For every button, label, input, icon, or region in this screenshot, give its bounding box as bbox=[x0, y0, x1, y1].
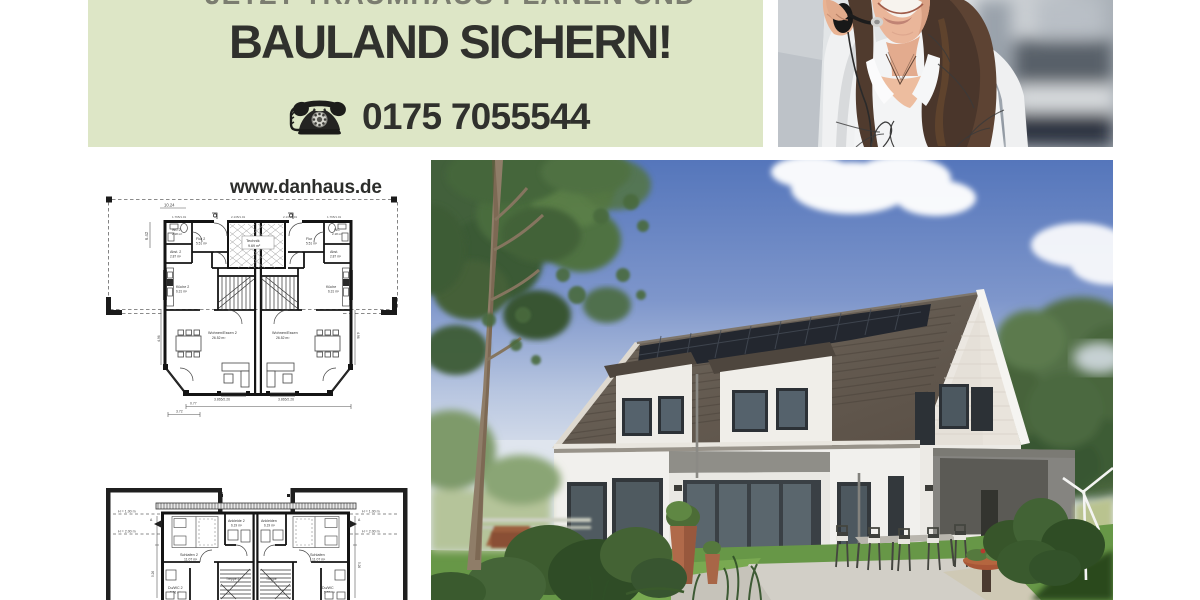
svg-text:6.31 m²: 6.31 m² bbox=[328, 290, 339, 294]
svg-text:5.51 m²: 5.51 m² bbox=[196, 242, 207, 246]
svg-text:0.77: 0.77 bbox=[190, 402, 197, 406]
svg-text:6.42: 6.42 bbox=[144, 231, 149, 240]
svg-text:H = 2.00 m: H = 2.00 m bbox=[118, 530, 136, 534]
svg-text:11.07 m²: 11.07 m² bbox=[312, 558, 326, 562]
svg-text:Wohnen/Essen: Wohnen/Essen bbox=[272, 331, 298, 335]
svg-text:H = 2.00 m: H = 2.00 m bbox=[362, 530, 380, 534]
svg-text:H = 1.00 m: H = 1.00 m bbox=[362, 510, 380, 514]
svg-text:Küche 2: Küche 2 bbox=[176, 285, 189, 289]
svg-text:Ankleide 2: Ankleide 2 bbox=[228, 519, 245, 523]
svg-text:Flur: Flur bbox=[306, 237, 313, 241]
svg-text:Flur 2: Flur 2 bbox=[196, 237, 205, 241]
svg-text:5.26: 5.26 bbox=[151, 571, 155, 577]
svg-text:10.24: 10.24 bbox=[164, 203, 175, 208]
svg-text:1.765/1.01: 1.765/1.01 bbox=[172, 215, 187, 219]
svg-text:Abst.: Abst. bbox=[330, 250, 338, 254]
svg-text:Ankleiden: Ankleiden bbox=[261, 519, 277, 523]
svg-text:2.18 m²: 2.18 m² bbox=[332, 232, 342, 236]
svg-text:2.18 m²: 2.18 m² bbox=[172, 232, 182, 236]
svg-text:2.87 m²: 2.87 m² bbox=[330, 255, 341, 259]
svg-text:3.865/2.26: 3.865/2.26 bbox=[278, 398, 294, 402]
svg-text:3.865/2.26: 3.865/2.26 bbox=[214, 398, 230, 402]
svg-text:Abst. 2: Abst. 2 bbox=[170, 250, 181, 254]
svg-text:H = 1.00 m: H = 1.00 m bbox=[118, 510, 136, 514]
svg-text:9.69 m²: 9.69 m² bbox=[248, 244, 261, 248]
svg-text:6.19 m²: 6.19 m² bbox=[231, 524, 242, 528]
svg-text:Du/WC 2: Du/WC 2 bbox=[168, 586, 183, 590]
svg-text:Küche: Küche bbox=[326, 285, 336, 289]
svg-text:6.19 m²: 6.19 m² bbox=[264, 524, 275, 528]
svg-text:Treppe 2: Treppe 2 bbox=[226, 577, 240, 581]
svg-text:Du/WC: Du/WC bbox=[322, 586, 334, 590]
svg-text:4.96: 4.96 bbox=[157, 335, 161, 342]
svg-text:2.87 m²: 2.87 m² bbox=[170, 255, 181, 259]
svg-text:26.52 m²: 26.52 m² bbox=[212, 336, 226, 340]
svg-text:Technik: Technik bbox=[246, 238, 260, 243]
svg-text:Schlafen 2: Schlafen 2 bbox=[180, 553, 198, 557]
svg-text:Schlafen: Schlafen bbox=[310, 553, 325, 557]
svg-text:11.07 m²: 11.07 m² bbox=[184, 558, 198, 562]
svg-text:3.72: 3.72 bbox=[176, 410, 183, 414]
svg-text:26.52 m²: 26.52 m² bbox=[276, 336, 290, 340]
svg-text:2.135/1.01: 2.135/1.01 bbox=[283, 215, 298, 219]
svg-text:5.51 m²: 5.51 m² bbox=[306, 242, 317, 246]
svg-text:Wohnen/Essen 2: Wohnen/Essen 2 bbox=[208, 331, 237, 335]
svg-text:4.96: 4.96 bbox=[356, 332, 360, 339]
svg-text:1.765/1.01: 1.765/1.01 bbox=[327, 215, 342, 219]
svg-text:5.26: 5.26 bbox=[357, 562, 361, 568]
svg-text:2.135/1.01: 2.135/1.01 bbox=[231, 215, 246, 219]
svg-text:Treppe: Treppe bbox=[266, 577, 277, 581]
svg-text:6.31 m²: 6.31 m² bbox=[176, 290, 187, 294]
